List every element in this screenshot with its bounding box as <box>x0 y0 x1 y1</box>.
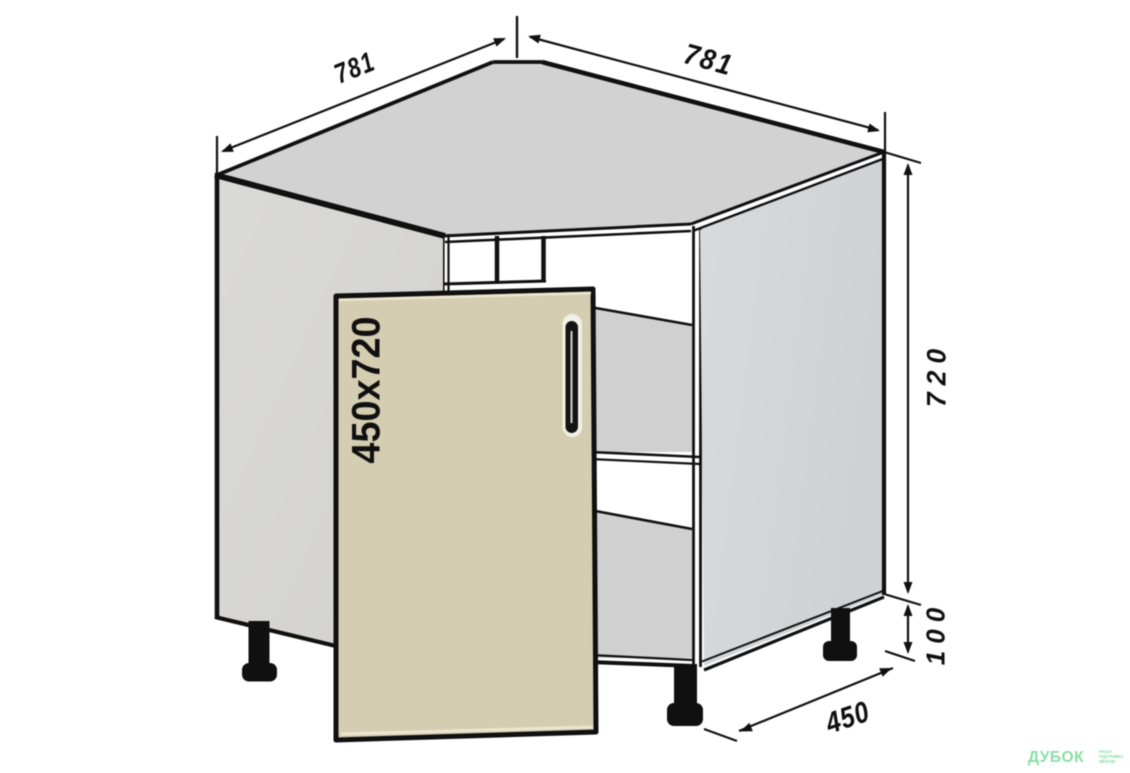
svg-text:ДУБОК: ДУБОК <box>1028 749 1084 766</box>
svg-text:720: 720 <box>922 342 952 407</box>
svg-text:450x720: 450x720 <box>344 316 388 463</box>
svg-text:МЕБЛІВ: МЕБЛІВ <box>1099 759 1115 764</box>
svg-text:100: 100 <box>921 601 951 665</box>
